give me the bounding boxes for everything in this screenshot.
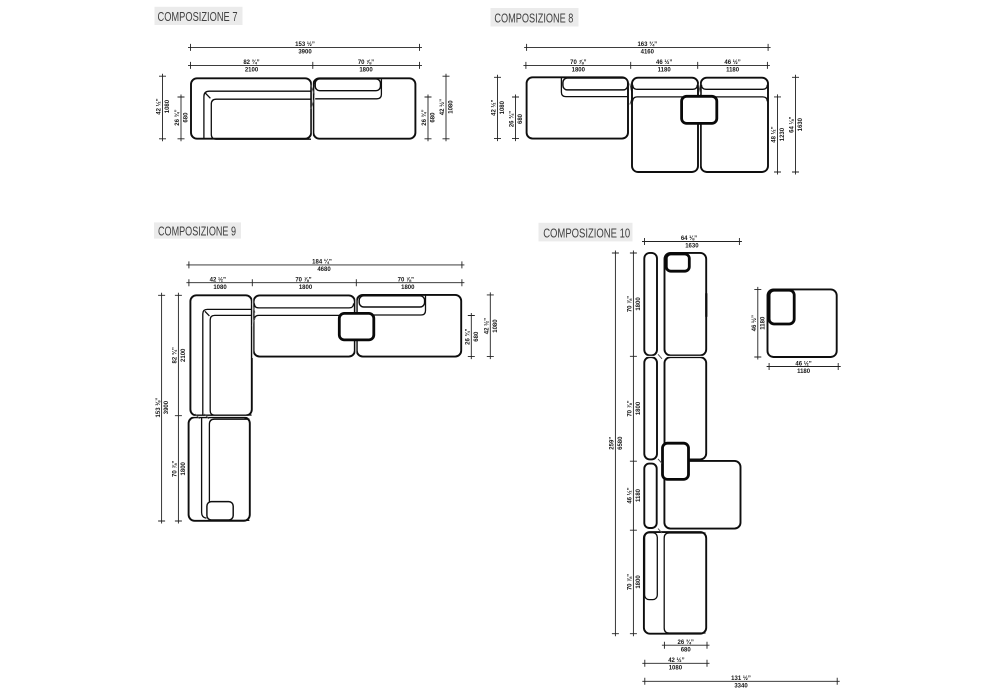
svg-text:1630: 1630 xyxy=(685,244,699,250)
svg-text:680: 680 xyxy=(474,331,480,342)
svg-text:26 ¾”: 26 ¾” xyxy=(174,109,181,125)
svg-text:70 ⅞”: 70 ⅞” xyxy=(628,296,634,312)
svg-text:46 ½”: 46 ½” xyxy=(627,487,634,503)
svg-text:1180: 1180 xyxy=(658,68,672,74)
svg-text:184 ¼”: 184 ¼” xyxy=(312,259,332,266)
svg-text:70 ⅞”: 70 ⅞” xyxy=(295,277,311,283)
svg-text:70 ⅞”: 70 ⅞” xyxy=(398,277,414,283)
svg-text:64 ⅛”: 64 ⅛” xyxy=(681,236,697,242)
svg-text:46 ½”: 46 ½” xyxy=(795,360,811,367)
svg-text:1800: 1800 xyxy=(572,68,586,74)
svg-text:1630: 1630 xyxy=(798,117,804,131)
svg-text:2100: 2100 xyxy=(181,348,187,362)
svg-text:3900: 3900 xyxy=(298,49,312,55)
svg-text:1180: 1180 xyxy=(726,68,740,74)
svg-text:1080: 1080 xyxy=(165,99,171,113)
svg-text:1080: 1080 xyxy=(669,666,683,672)
svg-text:259”: 259” xyxy=(610,437,616,450)
svg-text:46 ½”: 46 ½” xyxy=(724,59,740,66)
svg-text:680: 680 xyxy=(431,112,437,123)
svg-text:1230: 1230 xyxy=(780,127,786,141)
svg-text:4680: 4680 xyxy=(317,267,331,273)
svg-text:1800: 1800 xyxy=(359,68,373,74)
svg-text:3900: 3900 xyxy=(164,400,170,414)
svg-text:1080: 1080 xyxy=(213,285,227,291)
svg-text:42 ½”: 42 ½” xyxy=(491,100,498,116)
svg-text:26 ¾”: 26 ¾” xyxy=(678,639,694,646)
svg-text:680: 680 xyxy=(518,113,524,124)
svg-text:1800: 1800 xyxy=(636,575,642,589)
svg-text:42 ½”: 42 ½” xyxy=(668,657,684,664)
svg-text:42 ½”: 42 ½” xyxy=(210,276,226,283)
svg-text:2100: 2100 xyxy=(245,68,259,74)
svg-text:131 ½”: 131 ½” xyxy=(731,675,751,682)
svg-text:COMPOSIZIONE 7: COMPOSIZIONE 7 xyxy=(158,9,238,24)
svg-text:1800: 1800 xyxy=(299,285,313,291)
svg-text:680: 680 xyxy=(184,112,190,123)
svg-text:42 ½”: 42 ½” xyxy=(156,98,163,114)
svg-text:70 ⅞”: 70 ⅞” xyxy=(358,60,374,66)
svg-text:163 ¾”: 163 ¾” xyxy=(637,41,657,48)
svg-text:46 ½”: 46 ½” xyxy=(656,59,672,66)
svg-text:1080: 1080 xyxy=(449,100,455,114)
svg-text:3340: 3340 xyxy=(734,684,748,690)
svg-text:70 ⅞”: 70 ⅞” xyxy=(173,461,179,477)
svg-text:4160: 4160 xyxy=(641,49,655,55)
svg-text:42 ½”: 42 ½” xyxy=(439,99,446,115)
svg-text:1080: 1080 xyxy=(500,100,506,114)
svg-text:70 ⅞”: 70 ⅞” xyxy=(628,400,634,416)
svg-text:1180: 1180 xyxy=(797,369,811,375)
svg-text:48 ½”: 48 ½” xyxy=(771,126,778,142)
svg-text:82 ¾”: 82 ¾” xyxy=(172,347,179,363)
svg-text:COMPOSIZIONE 10: COMPOSIZIONE 10 xyxy=(543,226,630,241)
svg-text:26 ¾”: 26 ¾” xyxy=(509,111,516,127)
svg-text:680: 680 xyxy=(681,648,692,654)
svg-text:64 ⅛”: 64 ⅛” xyxy=(790,117,796,133)
svg-text:153 ½”: 153 ½” xyxy=(295,41,315,48)
svg-text:6580: 6580 xyxy=(618,436,624,450)
svg-text:70 ⅞”: 70 ⅞” xyxy=(628,574,634,590)
svg-text:1180: 1180 xyxy=(760,316,766,330)
svg-text:46 ½”: 46 ½” xyxy=(751,315,758,331)
svg-text:1180: 1180 xyxy=(636,488,642,502)
svg-text:1800: 1800 xyxy=(636,297,642,311)
svg-text:COMPOSIZIONE 9: COMPOSIZIONE 9 xyxy=(158,223,236,238)
svg-text:1800: 1800 xyxy=(401,285,415,291)
svg-text:1080: 1080 xyxy=(493,319,499,333)
svg-text:1800: 1800 xyxy=(636,401,642,415)
svg-text:26 ¾”: 26 ¾” xyxy=(465,329,472,345)
svg-text:1800: 1800 xyxy=(181,461,187,475)
svg-text:70 ⅞”: 70 ⅞” xyxy=(570,60,586,66)
svg-text:153 ⅜”: 153 ⅜” xyxy=(156,398,162,418)
svg-text:42 ½”: 42 ½” xyxy=(484,318,491,334)
svg-text:82 ¾”: 82 ¾” xyxy=(243,59,259,66)
svg-text:COMPOSIZIONE 8: COMPOSIZIONE 8 xyxy=(494,10,573,25)
svg-text:26 ¾”: 26 ¾” xyxy=(421,109,428,125)
